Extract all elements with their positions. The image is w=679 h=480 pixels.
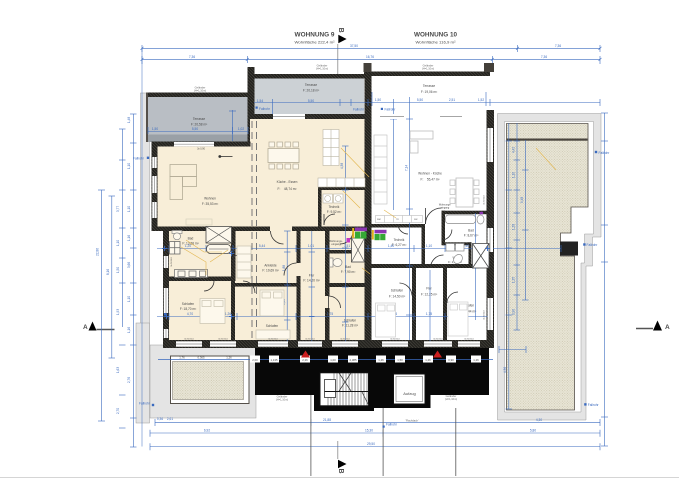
svg-text:1,48: 1,48 (127, 117, 131, 123)
svg-text:3x 50 110: 3x 50 110 (390, 339, 400, 341)
svg-text:2,61: 2,61 (167, 417, 173, 421)
svg-text:1,10: 1,10 (426, 244, 432, 248)
svg-text:0,90: 0,90 (512, 309, 516, 315)
svg-text:A: A (665, 324, 670, 331)
svg-text:7,36: 7,36 (555, 44, 561, 48)
svg-text:4,42: 4,42 (512, 147, 516, 153)
svg-text:Bad: Bad (345, 265, 351, 269)
svg-text:F: 8,67 m²: F: 8,67 m² (464, 234, 479, 238)
svg-text:Fallrohr: Fallrohr (353, 108, 365, 112)
svg-text:Bad: Bad (468, 229, 474, 233)
svg-text:1,00: 1,00 (330, 358, 336, 362)
svg-text:1,75: 1,75 (426, 312, 432, 316)
svg-text:1,02: 1,02 (238, 127, 244, 131)
svg-text:8,16: 8,16 (106, 269, 110, 275)
svg-text:1,10: 1,10 (116, 240, 120, 246)
svg-text:1,76: 1,76 (179, 355, 185, 359)
svg-text:4,30: 4,30 (536, 418, 542, 422)
svg-text:3x 0,90: 3x 0,90 (197, 148, 206, 151)
svg-text:F: 20,18 m²: F: 20,18 m² (303, 89, 319, 93)
svg-text:3x 0,30: 3x 0,30 (307, 117, 316, 120)
svg-text:'Flachdach': 'Flachdach' (406, 419, 419, 423)
svg-text:3x 50 110: 3x 50 110 (184, 339, 194, 341)
svg-text:Wohnfläche 116,9 m²: Wohnfläche 116,9 m² (416, 41, 457, 45)
svg-text:2,385: 2,385 (350, 358, 357, 362)
svg-text:F: 11,28 m²: F: 11,28 m² (342, 324, 358, 328)
svg-text:3,66: 3,66 (127, 262, 131, 268)
svg-text:Terrasse: Terrasse (193, 117, 205, 121)
svg-text:F: 14,50 m²: F: 14,50 m² (389, 295, 405, 299)
svg-text:Schlafen: Schlafen (266, 324, 279, 328)
svg-text:9,48: 9,48 (520, 197, 524, 203)
svg-text:3,51: 3,51 (344, 244, 350, 248)
svg-text:Wohnen - Küche: Wohnen - Küche (418, 172, 442, 176)
svg-text:1,50: 1,50 (152, 127, 158, 131)
svg-text:B: B (337, 28, 344, 33)
svg-text:Fallrohr: Fallrohr (133, 156, 145, 160)
svg-text:Wohnfläche 222,4 m²: Wohnfläche 222,4 m² (295, 41, 336, 45)
svg-text:Terrasse: Terrasse (305, 83, 317, 87)
svg-text:WOHNUNG 10: WOHNUNG 10 (414, 32, 457, 39)
svg-text:1,26: 1,26 (425, 358, 431, 362)
svg-text:(H=1,10m): (H=1,10m) (422, 67, 434, 71)
svg-text:Küche - Essen: Küche - Essen (277, 180, 298, 184)
svg-text:Aufzug: Aufzug (403, 391, 415, 396)
svg-text:5,80: 5,80 (530, 429, 536, 433)
svg-text:Flur: Flur (426, 287, 432, 291)
svg-text:5,50: 5,50 (417, 98, 423, 102)
svg-text:1,63: 1,63 (116, 367, 120, 373)
svg-text:F: 18,70 m²: F: 18,70 m² (180, 307, 196, 311)
svg-text:F: 7,90 m²: F: 7,90 m² (341, 270, 356, 274)
svg-text:Fallrohr: Fallrohr (588, 403, 600, 407)
svg-text:2,26: 2,26 (302, 358, 308, 362)
svg-text:Ankleide: Ankleide (264, 264, 276, 268)
svg-text:5,50: 5,50 (308, 99, 314, 103)
svg-text:1,16: 1,16 (127, 235, 131, 241)
svg-text:1,52: 1,52 (478, 98, 484, 102)
svg-text:2,00: 2,00 (252, 358, 258, 362)
svg-text:3x 50 110: 3x 50 110 (484, 194, 486, 204)
svg-text:Wohnen: Wohnen (204, 197, 216, 201)
svg-text:3x 50 110: 3x 50 110 (218, 339, 228, 341)
svg-text:16,76: 16,76 (366, 55, 374, 59)
svg-text:Fallrohr: Fallrohr (599, 151, 611, 155)
svg-text:DW: DW (414, 219, 417, 221)
svg-text:5,50: 5,50 (192, 127, 198, 131)
svg-text:0,36: 0,36 (157, 417, 163, 421)
svg-text:1,50: 1,50 (116, 267, 120, 273)
svg-text:1,93: 1,93 (116, 309, 120, 315)
svg-text:3,77: 3,77 (116, 206, 120, 212)
svg-text:4,70: 4,70 (187, 312, 193, 316)
svg-text:1,26: 1,26 (473, 358, 479, 362)
svg-text:3x 50 110: 3x 50 110 (268, 339, 278, 341)
svg-text:3x 50 110: 3x 50 110 (433, 339, 443, 341)
svg-text:eingang: eingang (441, 206, 450, 209)
svg-text:7,36: 7,36 (541, 55, 547, 59)
svg-text:Bad: Bad (188, 237, 194, 241)
svg-text:1,50: 1,50 (397, 358, 403, 362)
svg-text:A: A (83, 324, 88, 331)
svg-text:Fallrohr: Fallrohr (386, 423, 398, 427)
svg-text:4,36: 4,36 (503, 367, 507, 373)
svg-text:3x 50 110: 3x 50 110 (464, 339, 474, 341)
svg-text:1,10: 1,10 (127, 163, 131, 169)
svg-text:(H=1,10m): (H=1,10m) (316, 67, 328, 71)
svg-text:Technik: Technik (329, 205, 340, 209)
svg-text:Schlafen: Schlafen (182, 302, 195, 306)
svg-text:F: 55,47 m²: F: 55,47 m² (421, 178, 440, 182)
svg-text:1,75: 1,75 (327, 312, 333, 316)
svg-text:eingang: eingang (331, 242, 341, 246)
svg-text:F: 12,25 m²: F: 12,25 m² (421, 293, 437, 297)
svg-text:F: 19,69 m²: F: 19,69 m² (262, 269, 278, 273)
svg-text:1,01: 1,01 (308, 244, 314, 248)
svg-text:1,50: 1,50 (375, 98, 381, 102)
svg-text:3x 50 110: 3x 50 110 (305, 339, 315, 341)
svg-text:1,10: 1,10 (127, 296, 131, 302)
svg-text:1,40: 1,40 (388, 244, 394, 248)
svg-text:F: 48,74 m²: F: 48,74 m² (278, 187, 297, 191)
svg-text:(H=1,10m): (H=1,10m) (194, 89, 206, 93)
svg-text:F: 9,52 m²: F: 9,52 m² (327, 210, 342, 214)
svg-text:3x 50 110: 3x 50 110 (484, 309, 486, 319)
svg-text:2,51: 2,51 (449, 98, 455, 102)
svg-text:3x 50 110: 3x 50 110 (340, 339, 350, 341)
svg-text:29,50: 29,50 (367, 442, 375, 446)
svg-text:1,26: 1,26 (378, 358, 384, 362)
svg-text:Technik: Technik (394, 238, 405, 242)
svg-text:1,26: 1,26 (225, 312, 231, 316)
svg-text:1,10: 1,10 (127, 206, 131, 212)
svg-text:37,50: 37,50 (350, 44, 358, 48)
svg-text:WOHNUNG 9: WOHNUNG 9 (295, 32, 335, 39)
svg-text:(H=1,10m): (H=1,10m) (445, 397, 457, 401)
svg-text:1,20: 1,20 (185, 244, 191, 248)
svg-text:F: 19,06 m²: F: 19,06 m² (421, 90, 437, 94)
svg-text:Schlafen: Schlafen (391, 289, 404, 293)
svg-text:0,90: 0,90 (448, 358, 454, 362)
svg-text:F: 35,53 m²: F: 35,53 m² (202, 202, 218, 206)
svg-text:(H=1,10m): (H=1,10m) (276, 398, 288, 402)
svg-text:F: 20,58 m²: F: 20,58 m² (191, 123, 207, 127)
svg-text:15,30: 15,30 (365, 429, 373, 433)
svg-text:1,135: 1,135 (271, 358, 278, 362)
svg-text:B: B (337, 468, 344, 473)
svg-text:1,35: 1,35 (512, 277, 516, 283)
svg-text:1,54: 1,54 (257, 99, 263, 103)
svg-text:1,10: 1,10 (512, 172, 516, 178)
svg-text:Fallrohr: Fallrohr (587, 243, 599, 247)
svg-text:1,28: 1,28 (512, 224, 516, 230)
svg-text:21,88: 21,88 (323, 418, 331, 422)
svg-text:6,92: 6,92 (204, 429, 210, 433)
svg-text:7,14: 7,14 (405, 165, 409, 171)
svg-text:5,44: 5,44 (259, 244, 265, 248)
svg-text:1,16: 1,16 (127, 327, 131, 333)
svg-text:7,36: 7,36 (189, 55, 195, 59)
svg-text:22,86: 22,86 (96, 248, 100, 256)
svg-text:2,70: 2,70 (116, 408, 120, 414)
svg-text:Fallrohr: Fallrohr (139, 402, 151, 406)
svg-text:2,76: 2,76 (127, 377, 131, 383)
svg-text:WM: WM (377, 219, 381, 221)
svg-text:Fallrohr: Fallrohr (259, 107, 271, 111)
svg-text:Fallrohr: Fallrohr (385, 108, 397, 112)
svg-text:4,38: 4,38 (340, 163, 344, 169)
svg-text:Terrasse: Terrasse (423, 84, 435, 88)
svg-text:0,365: 0,365 (198, 355, 205, 359)
svg-text:1,26: 1,26 (226, 355, 232, 359)
svg-text:3x 50 110: 3x 50 110 (171, 256, 173, 266)
